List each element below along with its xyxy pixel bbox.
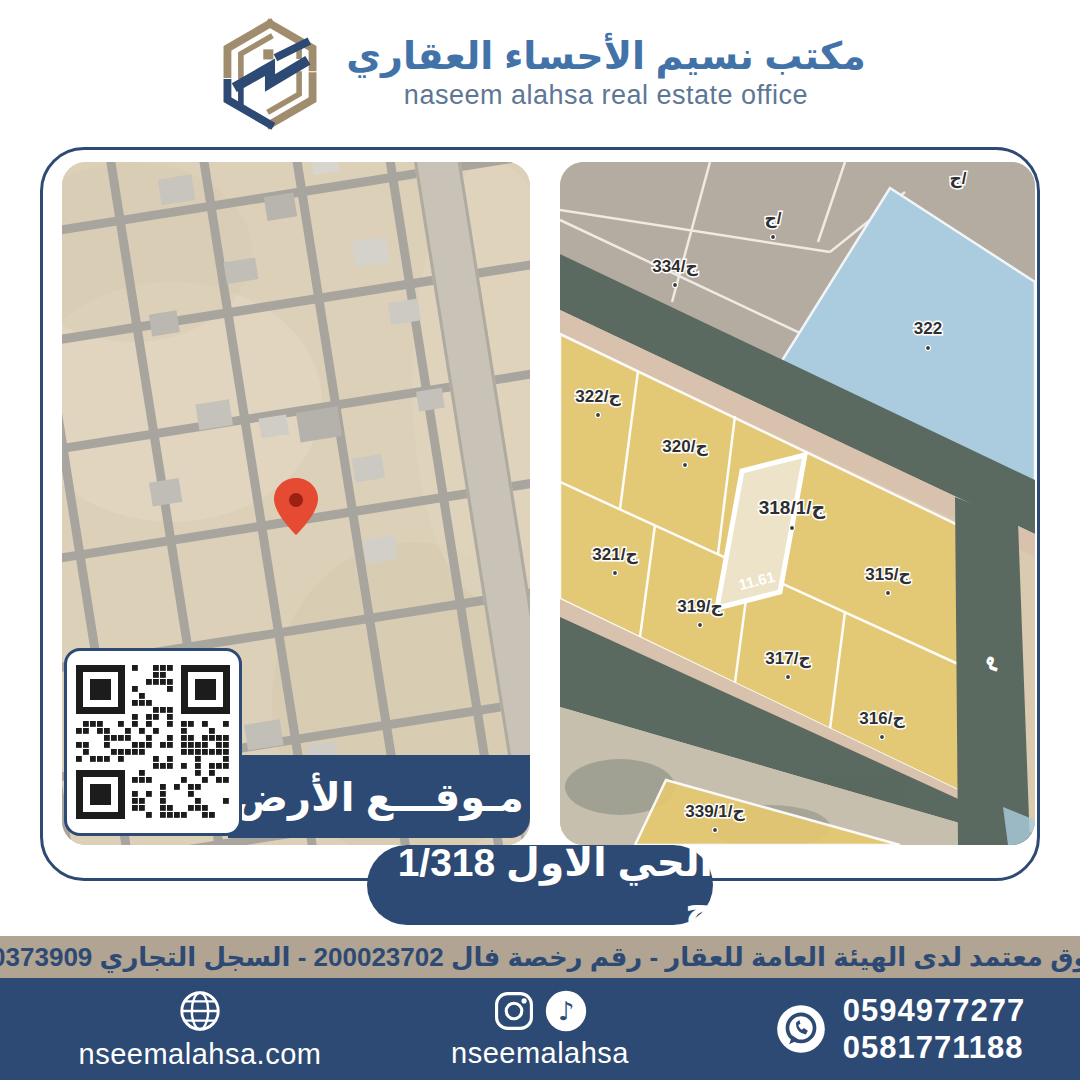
ribbon-label: مـوقـــع الأرض (234, 774, 524, 820)
parcel-label: 322 (914, 319, 942, 338)
website-group: nseemalahsa.com (30, 978, 370, 1080)
tiktok-icon: ♪ (544, 989, 588, 1033)
parcel-label: ج/334 (652, 257, 698, 277)
parcel-label: ج/321 (592, 545, 638, 565)
qr-code-image (76, 663, 230, 821)
parcel-label: ج/322 (575, 387, 621, 407)
phone-number-1: 0594977277 (843, 992, 1025, 1029)
social-handle: nseemalahsa (451, 1037, 629, 1070)
land-location-ribbon: مـوقـــع الأرض (228, 755, 530, 838)
whatsapp-icon (775, 1003, 827, 1055)
license-text: مسوق معتمد لدى الهيئة العامة للعقار - رق… (0, 942, 1080, 973)
district-banner-text: الحي الاول 1/318 ج (367, 840, 713, 930)
parcel-label: ج/317 (765, 649, 811, 669)
header: مكتب نسيم الأحساء العقاري naseem alahsa … (0, 0, 1080, 147)
parcel-label: ج/315 (865, 565, 911, 585)
qr-code (64, 648, 242, 836)
license-bar: مسوق معتمد لدى الهيئة العامة للعقار - رق… (0, 936, 1080, 978)
parcel-label: ج/319 (677, 597, 723, 617)
instagram-icon (492, 989, 536, 1033)
globe-icon (177, 988, 223, 1034)
phone-numbers: 0594977277 0581771188 (843, 992, 1025, 1066)
parcel-label: ج/320 (662, 437, 708, 457)
website-url: nseemalahsa.com (79, 1038, 322, 1071)
company-title-arabic: مكتب نسيم الأحساء العقاري (346, 35, 865, 79)
parcel-label: ج/339/1 (685, 802, 745, 822)
svg-text:♪: ♪ (558, 996, 574, 1026)
company-titles: مكتب نسيم الأحساء العقاري naseem alahsa … (346, 35, 865, 111)
real-estate-flyer: مكتب نسيم الأحساء العقاري naseem alahsa … (0, 0, 1080, 1080)
company-logo-icon (214, 18, 326, 130)
district-banner: الحي الاول 1/318 ج (367, 845, 713, 925)
company-title-english: naseem alahsa real estate office (404, 79, 808, 111)
phone-group: 0594977277 0581771188 (750, 978, 1050, 1080)
parcel-label: ج/ (765, 209, 782, 229)
phone-number-2: 0581771188 (843, 1029, 1024, 1066)
parcel-label-highlighted: ج/318/1 (759, 497, 826, 519)
parcel-label: ج/ (950, 169, 967, 189)
contact-footer: nseemalahsa.com ♪ nseemalahsa (0, 978, 1080, 1080)
parcel-label: ج/316 (859, 709, 905, 729)
social-group: ♪ nseemalahsa (390, 978, 690, 1080)
parcel-map-image: ج/ ج/ ج/334 322 ج/322 ج/320 ج/318/1 ج/32… (560, 162, 1035, 845)
parcel-map-right: ج/ ج/ ج/334 322 ج/322 ج/320 ج/318/1 ج/32… (560, 162, 1035, 845)
